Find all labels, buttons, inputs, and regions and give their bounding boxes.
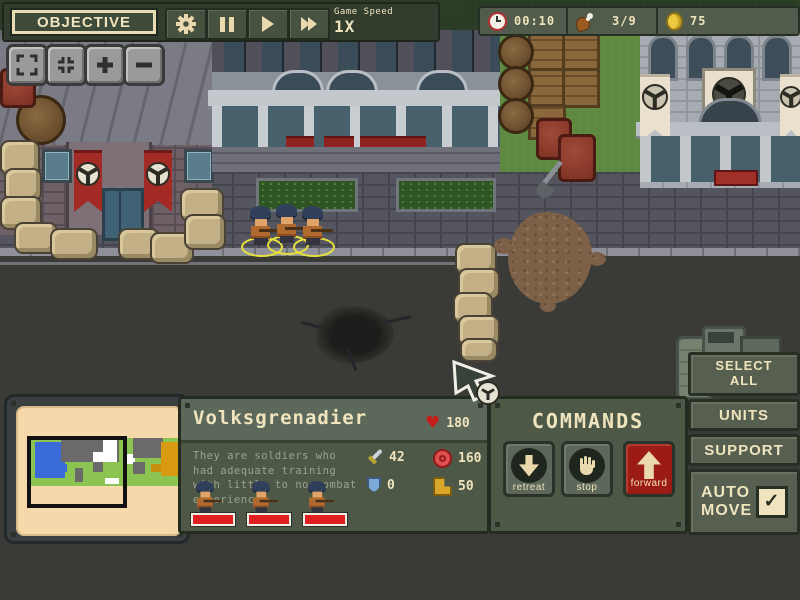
forward-button[interactable]: forward <box>623 441 675 497</box>
attack-stat: 42 <box>367 449 405 465</box>
speed-value: 50 <box>458 479 474 494</box>
minimap[interactable] <box>16 406 182 536</box>
game-screen: OBJECTIVE Game Spe <box>0 0 800 600</box>
colonnade <box>212 106 500 148</box>
legs <box>280 236 294 243</box>
stop-hand-icon <box>578 456 596 476</box>
play-button[interactable] <box>247 8 289 40</box>
stop-button[interactable]: stop <box>561 441 613 497</box>
retreat-arrow-icon <box>519 455 539 477</box>
game-speed-value[interactable]: 1X <box>334 17 436 36</box>
food-value: 3/9 <box>612 14 637 28</box>
zoom-out-button[interactable] <box>123 44 165 86</box>
attack-value: 42 <box>389 450 405 465</box>
government-building <box>640 30 800 188</box>
legs <box>306 238 320 245</box>
mouse-cursor <box>450 360 504 406</box>
forward-arrow-icon <box>637 451 661 479</box>
range-stat: 160 <box>433 449 481 468</box>
retreat-button[interactable]: retreat <box>503 441 555 497</box>
rifle <box>311 229 333 232</box>
helmet <box>276 204 297 217</box>
truck-window <box>708 332 734 343</box>
road-line <box>0 262 470 265</box>
red-doormat <box>714 170 758 186</box>
gold-value: 75 <box>690 14 706 28</box>
forward-label: forward <box>631 478 668 489</box>
faction-emblem-icon <box>146 162 170 186</box>
expand-icon <box>16 54 38 76</box>
stop-label: stop <box>577 482 598 493</box>
sandbags <box>184 214 226 250</box>
shield-icon <box>367 477 381 493</box>
checkmark-icon: ✓ <box>764 491 781 513</box>
heart-icon: ♥ <box>425 413 440 433</box>
window <box>184 149 214 183</box>
wooden-crate <box>562 32 600 72</box>
retreat-label: retreat <box>513 482 545 493</box>
gold-display: 75 <box>658 8 798 34</box>
fullscreen-button[interactable] <box>6 44 48 86</box>
support-button[interactable]: SUPPORT <box>688 434 800 466</box>
clock-icon <box>488 12 507 31</box>
red-barrel <box>558 134 596 182</box>
commands-title: COMMANDS <box>491 409 685 433</box>
food-icon <box>576 13 593 30</box>
building-base <box>212 147 500 172</box>
range-icon <box>433 449 452 468</box>
faction-emblem-icon <box>76 162 100 186</box>
gear-icon <box>175 13 197 35</box>
pause-icon <box>220 17 225 32</box>
auto-move-toggle[interactable]: AUTO MOVE ✓ <box>688 469 800 535</box>
objective-button[interactable]: OBJECTIVE <box>10 8 158 36</box>
volksgrenadier-unit[interactable] <box>298 206 328 254</box>
select-all-button[interactable]: SELECT ALL <box>688 352 800 396</box>
pause-button[interactable] <box>206 8 248 40</box>
sword-icon <box>367 449 383 465</box>
barrel <box>498 66 534 102</box>
faction-emblem-icon <box>642 84 668 110</box>
boot-icon <box>433 477 452 496</box>
commands-panel: COMMANDS retreat stop forward <box>488 396 688 534</box>
zoom-in-button[interactable] <box>84 44 126 86</box>
fast-forward-button[interactable] <box>288 8 330 40</box>
hp-value: 180 <box>446 416 469 431</box>
sandbags <box>460 338 498 362</box>
food-display: 3/9 <box>568 8 656 34</box>
barrel <box>498 34 534 70</box>
timer-display: 00:10 <box>480 8 566 34</box>
contract-icon <box>55 54 77 76</box>
squad-member-hp-bar <box>303 513 347 526</box>
armor-value: 0 <box>387 478 395 493</box>
helmet <box>250 206 271 219</box>
speed-stat: 50 <box>433 477 474 496</box>
plus-icon <box>94 54 116 76</box>
settings-button[interactable] <box>165 8 207 40</box>
sandbags <box>50 228 98 260</box>
game-speed-label: Game Speed <box>334 7 436 17</box>
squad-member-hp-bar <box>247 513 291 526</box>
faction-emblem-icon <box>780 86 800 108</box>
coin-icon <box>666 12 683 31</box>
wooden-crate <box>562 68 600 108</box>
auto-move-checkbox[interactable]: ✓ <box>756 486 788 518</box>
units-button[interactable]: UNITS <box>688 399 800 431</box>
timer-value: 00:10 <box>514 14 555 28</box>
game-speed-display: Game Speed 1X <box>334 7 436 36</box>
armor-stat: 0 <box>367 477 395 493</box>
resource-bar: 00:10 3/9 75 <box>478 6 800 36</box>
range-value: 160 <box>458 451 481 466</box>
arcade-building <box>212 30 500 172</box>
helmet <box>302 206 323 219</box>
unit-header: Volksgrenadier ♥ 180 <box>181 399 487 443</box>
window <box>42 149 72 183</box>
wooden-crate <box>528 68 566 108</box>
legs <box>254 238 268 245</box>
hedge-planter <box>396 178 496 212</box>
barrel <box>498 98 534 134</box>
play-icon <box>262 16 274 32</box>
minus-icon <box>133 54 155 76</box>
unit-info-panel: Volksgrenadier ♥ 180 They are soldiers w… <box>178 396 490 534</box>
unit-name: Volksgrenadier <box>193 407 367 429</box>
shrink-view-button[interactable] <box>45 44 87 86</box>
squad-member-hp-bar <box>191 513 235 526</box>
top-hud-bar: OBJECTIVE Game Spe <box>2 2 440 42</box>
hp-stat: ♥ 180 <box>425 413 470 433</box>
minimap-panel <box>4 394 190 544</box>
minimap-viewport[interactable] <box>27 436 127 508</box>
